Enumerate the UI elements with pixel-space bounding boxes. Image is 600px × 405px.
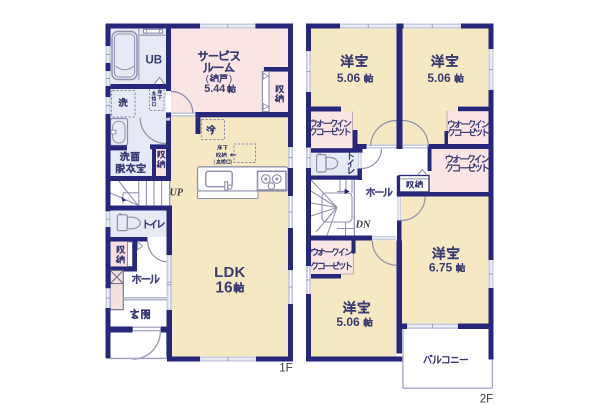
svg-text:5.06: 5.06	[337, 71, 361, 85]
svg-text:): )	[229, 73, 232, 84]
svg-text:2F: 2F	[480, 394, 493, 405]
svg-text:16: 16	[215, 279, 233, 296]
svg-text:UP: UP	[170, 188, 184, 199]
svg-text:(: (	[213, 160, 215, 166]
svg-text:1F: 1F	[279, 363, 292, 375]
svg-text:6.75: 6.75	[429, 261, 453, 275]
svg-text:): )	[230, 160, 232, 166]
svg-text:5.06: 5.06	[427, 71, 451, 85]
svg-text:DN: DN	[355, 220, 371, 231]
svg-text:5.06: 5.06	[336, 315, 360, 329]
svg-text:UB: UB	[145, 54, 162, 66]
svg-text:5.44: 5.44	[204, 83, 225, 95]
